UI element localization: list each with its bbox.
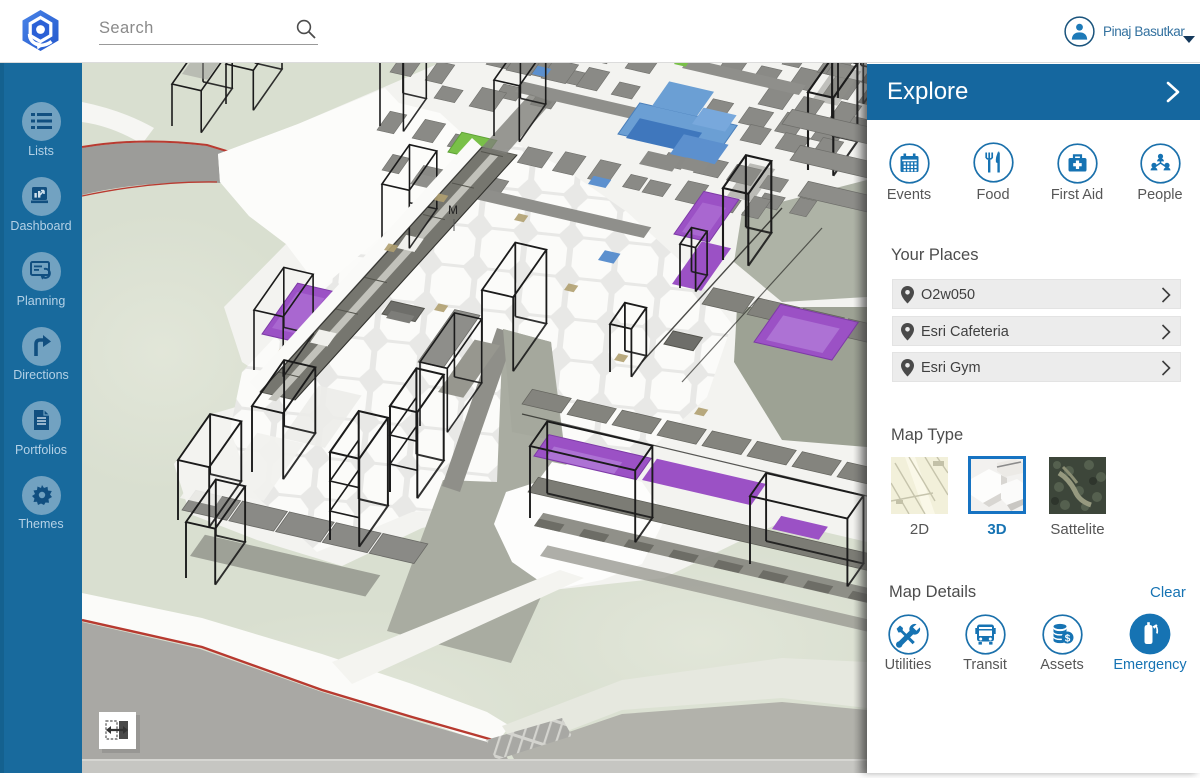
svg-text:M: M — [448, 203, 458, 217]
svg-text:$: $ — [1065, 633, 1071, 644]
